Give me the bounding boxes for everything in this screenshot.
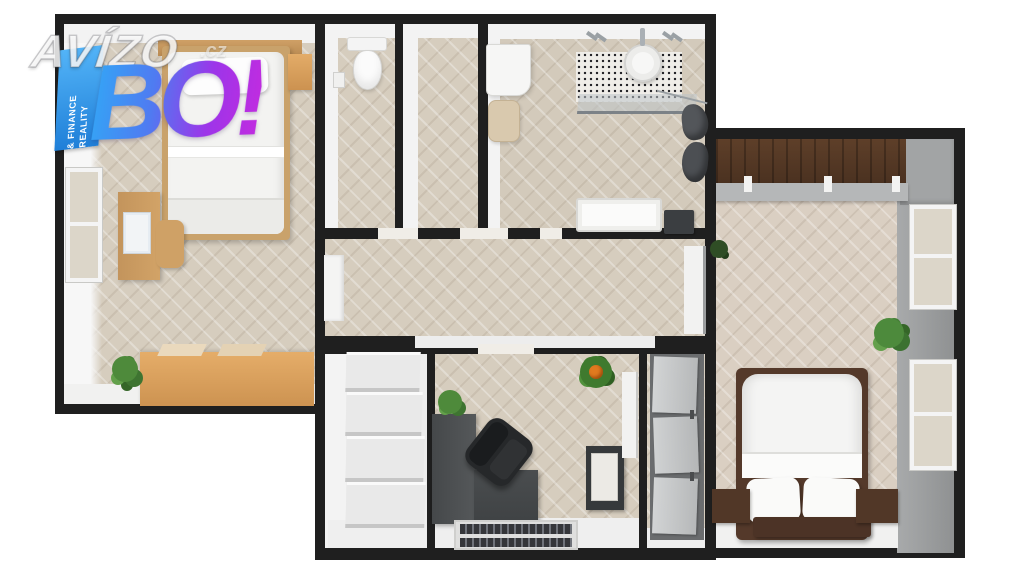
wall-face-wc-top [324, 23, 396, 38]
wardrobe-panel-3 [652, 477, 698, 535]
wardrobe-panel-2 [653, 416, 699, 474]
toilet-cistern [347, 37, 387, 51]
plant-left-room [112, 356, 138, 382]
wall-wc-divider [395, 14, 403, 238]
plant-right-bedroom [874, 318, 904, 348]
door-opening-office [478, 344, 534, 354]
bed-footboard [753, 517, 871, 537]
wall-face-wc [324, 23, 338, 229]
door-frame-right-bedroom [684, 246, 706, 334]
floor-hallway [324, 239, 706, 338]
washbasin [624, 44, 662, 82]
wall-bathroom-right [705, 14, 716, 558]
doormat-upper [460, 524, 572, 534]
laundry-basket [488, 100, 520, 142]
washing-machine [486, 44, 531, 96]
nightstand-left-room [288, 54, 312, 90]
wall-face-stairs-left [324, 348, 346, 548]
office-door-panel [622, 372, 638, 458]
wall-right-room-right [954, 128, 965, 558]
doormat-lower [460, 538, 572, 547]
window-right-upper-mullion [912, 254, 954, 258]
nightstand-right-bedroom-left [712, 489, 750, 523]
stair-tread-2 [345, 392, 423, 436]
stair-tread-1 [345, 352, 420, 392]
window-left-mullion [68, 222, 100, 226]
door-opening-wc [378, 228, 418, 239]
office-cabinet-front [591, 453, 618, 501]
sideboard [140, 352, 314, 406]
wardrobe-handle-2 [690, 472, 694, 481]
flower-center [589, 365, 603, 379]
sideboard-items [157, 344, 207, 356]
window-right-lower-mullion [912, 412, 954, 416]
plant-hallway [710, 240, 728, 258]
waste-bin [664, 210, 694, 234]
wall-face-empty-room-top [402, 23, 479, 38]
stair-tread-4 [345, 482, 426, 528]
wall-face-empty-room [402, 23, 418, 229]
floorplan-image: & FINANCE REALITY AVÍZO .cz BO! [0, 0, 1024, 576]
wall-wardrobe-divider [639, 348, 647, 558]
candle-2 [824, 176, 832, 192]
stair-tread-3 [345, 436, 425, 482]
bathtub [576, 198, 662, 232]
wardrobe-handle-1 [690, 410, 694, 419]
office-desk-vertical [432, 414, 476, 524]
candle-1 [744, 176, 752, 192]
wall-hallway-bottom-face [415, 336, 655, 348]
wardrobe-side-top-right [900, 139, 954, 205]
nightstand-right-bedroom-right [856, 489, 898, 523]
door-opening-empty-room [460, 228, 508, 239]
wall-niche [324, 255, 344, 321]
duvet-fold [742, 452, 862, 478]
wardrobe-panel-1 [652, 356, 698, 414]
wall-top-middle [315, 14, 716, 24]
desk-chair-left-room [156, 220, 184, 268]
door-opening-bathroom [540, 228, 562, 239]
laptop [123, 212, 151, 254]
toilet-bowl [353, 50, 382, 90]
candle-3 [892, 176, 900, 192]
flowering-plant [580, 356, 612, 388]
watermark: & FINANCE REALITY AVÍZO .cz BO! [28, 16, 278, 166]
basin-faucet [640, 28, 645, 46]
office-desk-plant [438, 390, 462, 414]
toilet-paper-holder [333, 72, 345, 88]
badge-logo-text: BO! [86, 43, 264, 157]
office-cabinet [586, 446, 624, 510]
wall-right-room-top [706, 128, 965, 139]
wardrobe-unit [650, 354, 704, 540]
bed-blanket-foot [168, 198, 284, 234]
